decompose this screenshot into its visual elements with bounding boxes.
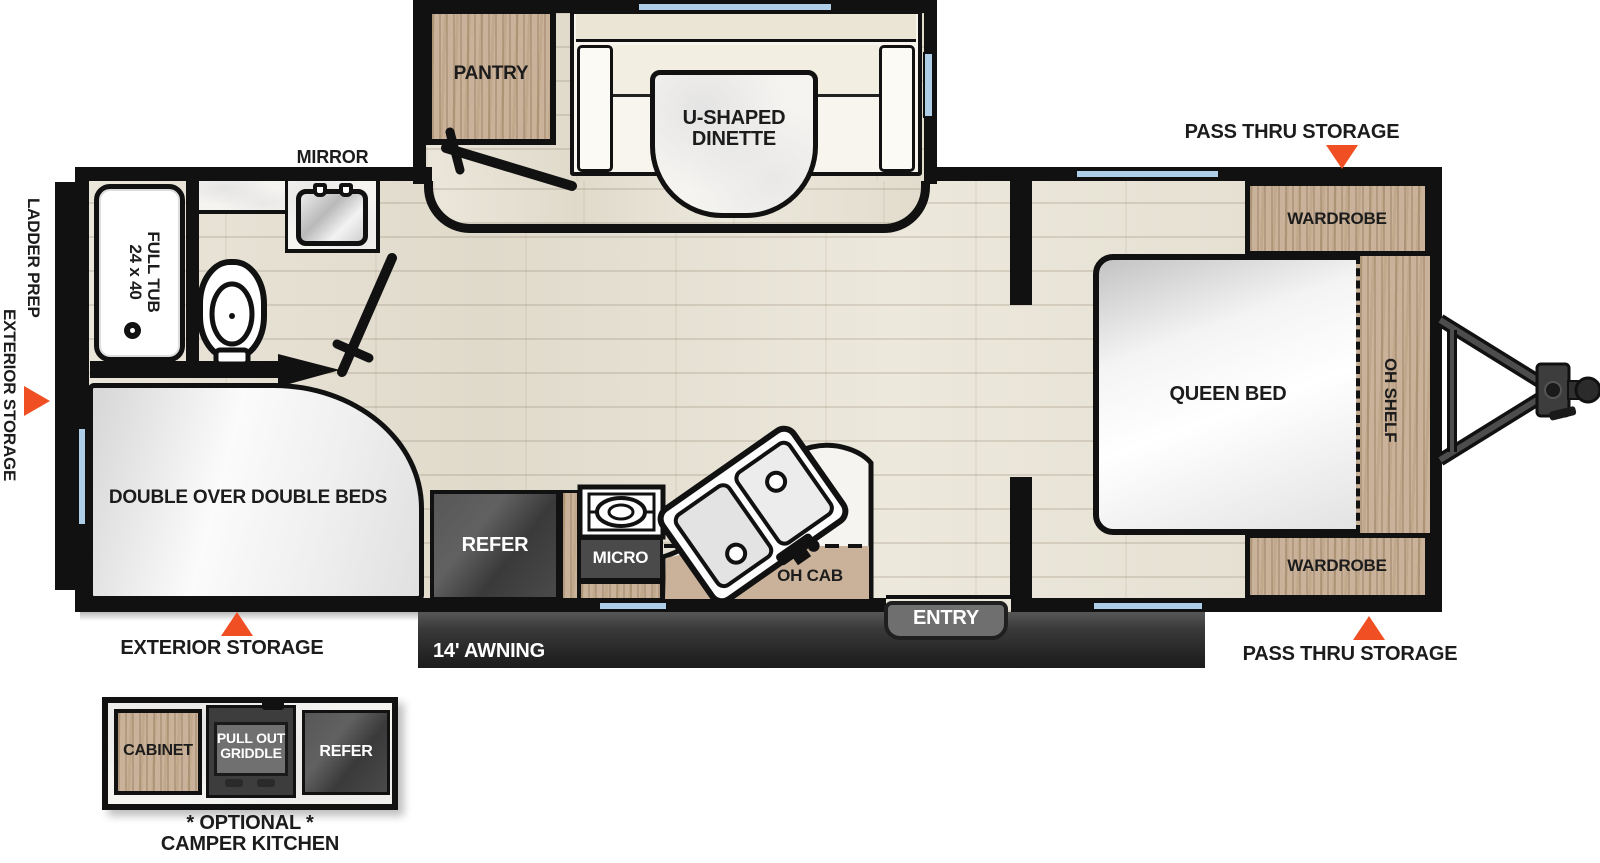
awning-label: 14' AWNING xyxy=(433,641,545,662)
exterior-storage-bottom-arrow xyxy=(221,612,253,636)
ladder-prep-label: LADDER PREP xyxy=(24,192,42,324)
pass-thru-storage-bottom-arrow xyxy=(1353,616,1385,640)
dinette-label-line1: U-SHAPED xyxy=(656,108,812,129)
ck-griddle-label: PULL OUT GRIDDLE xyxy=(214,731,288,761)
ck-griddle-clamp xyxy=(262,698,284,710)
pantry-door xyxy=(446,132,572,186)
dinette-label: U-SHAPED DINETTE xyxy=(656,108,812,150)
ck-griddle-handle-right xyxy=(257,779,275,787)
pantry-label: PANTRY xyxy=(431,64,551,84)
exterior-storage-left-arrow xyxy=(24,386,50,416)
toilet-icon xyxy=(200,262,264,364)
hitch-tongue xyxy=(1440,320,1600,460)
ck-griddle-label-line2: GRIDDLE xyxy=(214,746,288,761)
dinette-label-line2: DINETTE xyxy=(656,129,812,150)
ck-refer-label: REFER xyxy=(302,744,390,761)
pass-thru-storage-bottom-label: PASS THRU STORAGE xyxy=(1195,644,1505,665)
window-rear-left xyxy=(77,427,87,526)
window-dinette-right xyxy=(923,52,934,118)
window-bedroom-bottom xyxy=(1092,601,1204,611)
ck-caption-title: CAMPER KITCHEN xyxy=(115,834,385,855)
exterior-storage-bottom-label: EXTERIOR STORAGE xyxy=(82,638,362,659)
exterior-storage-left-label: EXTERIOR STORAGE xyxy=(0,305,18,485)
entry-label: ENTRY xyxy=(884,608,1008,629)
ck-griddle-label-line1: PULL OUT xyxy=(214,731,288,746)
rv-floorplan: FULL TUB 24 x 40 DOUBLE OVER DOUBLE BEDS… xyxy=(0,0,1600,863)
pass-thru-storage-top-arrow xyxy=(1326,145,1358,169)
ck-griddle-handle-left xyxy=(225,779,243,787)
ck-caption-optional: * OPTIONAL * xyxy=(115,813,385,834)
pass-thru-storage-top-label: PASS THRU STORAGE xyxy=(1142,122,1442,143)
window-kitchen-bottom xyxy=(598,601,668,611)
ck-cabinet-label: CABINET xyxy=(112,743,204,760)
oh-cab-label: OH CAB xyxy=(745,567,875,585)
cooktop-icon xyxy=(580,487,663,537)
window-bedroom-top xyxy=(1075,169,1220,179)
mirror-label: MIRROR xyxy=(275,148,390,167)
window-dinette-top xyxy=(637,2,833,12)
bathroom-door xyxy=(337,258,392,372)
